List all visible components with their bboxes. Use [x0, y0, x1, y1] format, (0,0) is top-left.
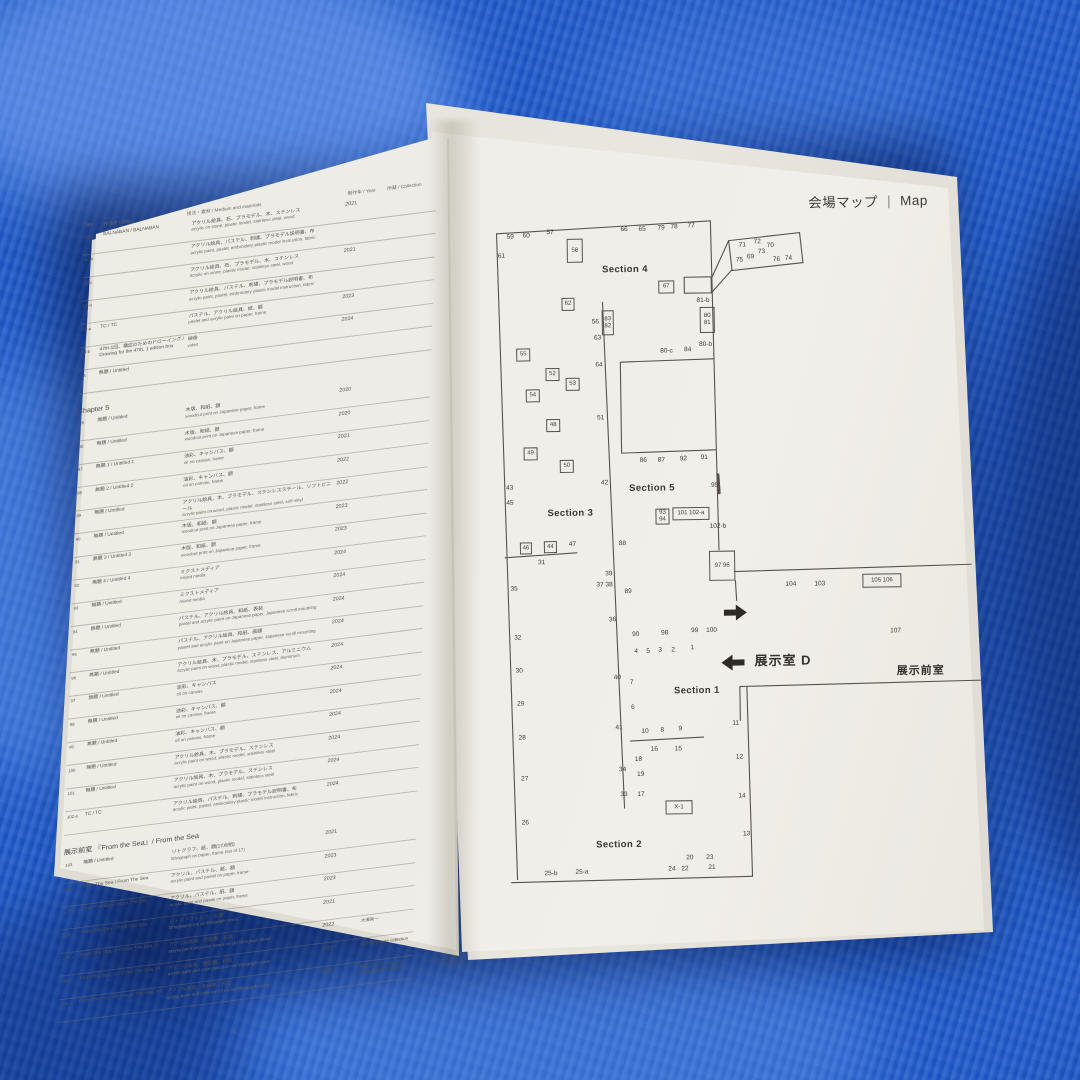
catalog-year: 2023 — [335, 522, 371, 532]
catalog-no: 94 — [71, 627, 88, 634]
map-boxed-number-line: 58 — [571, 247, 578, 254]
catalog-year: 2021 — [323, 895, 359, 905]
map-number: 79 — [657, 226, 664, 233]
map-number: 19 — [637, 772, 644, 779]
catalog-year: 2024 — [332, 615, 368, 625]
map-number: 43 — [506, 486, 513, 493]
map-boxed-number-line: 50 — [563, 463, 570, 470]
map-boxed-number-line: 105 106 — [871, 577, 893, 584]
map-boxed-number: 53 — [566, 378, 580, 391]
map-boxed-number-line: 44 — [547, 544, 554, 551]
map-number: 99 — [691, 628, 698, 635]
catalog-year: 2021 — [325, 826, 361, 836]
catalog-no: 82-d — [81, 302, 98, 309]
map-boxed-number: 67 — [658, 280, 674, 293]
map-number: 15 — [675, 746, 682, 753]
map-number: 45 — [506, 501, 513, 508]
map-boxed-number-line: 49 — [527, 450, 534, 457]
map-number: 29 — [517, 702, 524, 709]
catalog-no: 86 — [77, 442, 94, 449]
map-number: 7 — [630, 680, 634, 687]
map-number: 10 — [641, 729, 648, 736]
map-boxed-number: 46 — [520, 542, 532, 554]
catalog-no: 95 — [70, 650, 87, 657]
map-number: 3 — [658, 648, 662, 655]
map-number: 59 — [507, 235, 514, 242]
map-boxed-number: 58 — [567, 239, 583, 263]
map-number: 51 — [597, 415, 604, 422]
venue-map: Section 4Section 3Section 5Section 1Sect… — [486, 205, 995, 888]
map-boxed-number-line: 55 — [520, 351, 527, 358]
map-number: 35 — [510, 587, 517, 594]
catalog-year: 2023 — [324, 849, 360, 859]
map-labels: 596057616665797877717270736975767481-b80… — [486, 205, 995, 888]
catalog-year: 2024 — [330, 661, 366, 671]
map-boxed-number: X-1 — [665, 800, 692, 814]
map-number: 74 — [785, 256, 792, 263]
map-number: 2 — [671, 647, 675, 654]
map-number: 5 — [646, 649, 650, 656]
map-number: 90 — [632, 632, 639, 639]
map-number: 9 — [678, 726, 682, 733]
catalog-no: 100 — [66, 766, 83, 773]
map-boxed-number-line: 62 — [565, 301, 572, 308]
catalog-rows: 82-aBALNABAN / BALNABANアクリル絵具、石、プラモデル、木、… — [58, 188, 436, 1023]
map-number: 18 — [635, 757, 642, 764]
catalog-collection — [378, 376, 436, 383]
catalog-no: 87 — [76, 465, 93, 472]
map-number: 80-b — [699, 342, 712, 349]
map-boxed-number: 50 — [560, 460, 574, 473]
catalog-no: 102-a — [65, 813, 82, 820]
room-d-label: 展示室 D — [754, 650, 811, 670]
map-number: 56 — [592, 319, 599, 326]
catalog-no: 90 — [74, 535, 91, 542]
left-arrow-icon — [720, 654, 744, 670]
catalog-year: 2024 — [329, 708, 365, 718]
map-boxed-number: 52 — [545, 368, 559, 381]
right-arrow-icon — [724, 604, 748, 620]
map-number: 16 — [651, 747, 658, 754]
map-number: 64 — [595, 362, 602, 369]
catalog-no: 85 — [77, 419, 94, 426]
map-boxed-number: 97 96 — [709, 551, 735, 581]
map-boxed-number: 62 — [561, 298, 574, 311]
map-number: 6 — [631, 705, 635, 712]
catalog-year — [341, 336, 377, 341]
catalog-no: 106-1 — [60, 954, 77, 961]
map-number: 28 — [519, 735, 526, 742]
catalog-no: 101 — [66, 789, 83, 796]
map-boxed-number: 8081 — [700, 307, 715, 333]
map-number: 27 — [521, 776, 528, 783]
map-boxed-number: 55 — [516, 348, 530, 361]
map-boxed-number-line: 54 — [529, 392, 536, 399]
map-number: 34 — [619, 767, 626, 774]
map-number: 32 — [514, 636, 521, 643]
catalog-no: 96 — [69, 674, 86, 681]
catalog-no: 104-a — [63, 884, 80, 891]
map-number: 26 — [522, 820, 529, 827]
map-number: 25-b — [544, 871, 557, 878]
map-number: 98 — [661, 630, 668, 637]
map-number: 4 — [634, 649, 638, 656]
map-number: 76 — [773, 257, 780, 264]
map-number: 40 — [614, 675, 621, 682]
map-boxed-number: 49 — [524, 447, 538, 460]
map-number: 8 — [660, 728, 664, 735]
map-number: 23 — [706, 855, 713, 862]
map-number: 65 — [638, 227, 645, 234]
catalog-no: 91 — [73, 558, 90, 565]
catalog-no: 97 — [69, 697, 86, 704]
map-number: 103 — [814, 581, 825, 588]
catalog-no: 103 — [63, 861, 80, 868]
map-number: 41 — [615, 725, 622, 732]
map-number: 72 — [754, 239, 761, 246]
map-boxed-number: 44 — [544, 541, 557, 553]
map-boxed-number: 48 — [546, 419, 560, 432]
map-number: 11 — [732, 721, 739, 728]
map-number: 42 — [601, 480, 608, 487]
map-boxed-number-line: 97 96 — [715, 562, 730, 569]
catalog-year: 2022 — [336, 476, 372, 486]
catalog-year: 2022 — [337, 453, 373, 463]
map-boxed-number-line: 101 102-a — [677, 510, 704, 517]
map-number: 47 — [569, 542, 576, 549]
map-number: 37 38 — [596, 582, 612, 589]
map-number: 17 — [637, 792, 644, 799]
catalog-year: 2023 — [336, 499, 372, 509]
map-number: 24 — [668, 866, 675, 873]
catalog-year: 2020 — [339, 384, 375, 394]
map-number: 104 — [785, 582, 796, 589]
map-number: 36 — [609, 617, 616, 624]
map-number: 102-b — [710, 524, 727, 531]
map-number: 91 — [701, 455, 708, 462]
map-number: 81-b — [696, 298, 709, 305]
catalog-no: 83-b — [80, 348, 97, 355]
catalog-year: 2022 — [321, 942, 357, 952]
catalog-year: 2024 — [328, 731, 364, 741]
map-number: 1 — [690, 645, 694, 652]
map-number: 100 — [706, 628, 717, 635]
photo-scene: No. 作品名 / Title 技法・素材 / Medium and mater… — [0, 0, 1080, 1080]
map-number: 73 — [758, 249, 765, 256]
map-number: 60 — [523, 233, 530, 240]
map-boxed-number-line: 52 — [549, 371, 556, 378]
catalog-no: 106-3 — [59, 1000, 76, 1007]
catalog-year — [345, 220, 381, 225]
map-number: 66 — [620, 227, 627, 234]
map-boxed-number-line: 94 — [659, 517, 666, 524]
map-boxed-number-line: 82 — [604, 323, 611, 330]
catalog-no: 82-a — [83, 232, 100, 239]
map-number: 84 — [684, 347, 691, 354]
catalog-year: 2024 — [331, 638, 367, 648]
map-number: 107 — [890, 628, 901, 635]
map-boxed-number-line: 81 — [704, 320, 711, 327]
map-number: 33 — [620, 792, 627, 799]
map-number: 75 — [736, 257, 743, 264]
catalog-no: 104-b — [62, 908, 79, 915]
map-number: 12 — [736, 754, 743, 761]
map-boxed-number: 101 102-a — [672, 507, 709, 521]
catalog-collection — [364, 818, 422, 825]
catalog-year: 2022 — [321, 965, 357, 975]
catalog-year: 2024 — [333, 569, 369, 579]
map-number: 89 — [625, 589, 632, 596]
catalog-year: 2021 — [338, 430, 374, 440]
catalog-no: 105 — [61, 931, 78, 938]
map-boxed-number-line: X-1 — [674, 804, 683, 811]
map-number: 39 — [605, 571, 612, 578]
column-header-no: No. — [86, 222, 94, 228]
map-number: 30 — [516, 669, 523, 676]
catalog-year: 2024 — [327, 777, 363, 787]
catalog-no: 92 — [72, 581, 89, 588]
catalog-no: 98 — [68, 720, 85, 727]
catalog-no: 83-a — [80, 325, 97, 332]
catalog-no: 106-2 — [60, 977, 77, 984]
map-number: 57 — [546, 230, 553, 237]
catalog-no: 88 — [75, 488, 92, 495]
map-number: 25-a — [575, 870, 588, 877]
map-number: 86 — [640, 458, 647, 465]
map-page-content: 会場マップ | Map — [486, 189, 1001, 968]
catalog-year: 2024 — [327, 754, 363, 764]
catalog-year: 2022 — [322, 918, 358, 928]
map-number: 22 — [681, 866, 688, 873]
map-number: 63 — [594, 335, 601, 342]
map-number: 71 — [739, 242, 746, 249]
catalog-year: 2021 — [345, 197, 381, 207]
catalog-no: 82-b — [83, 255, 100, 262]
catalog-no: 89 — [74, 512, 91, 519]
map-number: 92 — [680, 456, 687, 463]
anteroom-label: 展示前室 — [897, 662, 945, 679]
catalog-year: 2023 — [324, 872, 360, 882]
catalog-year: 2021 — [344, 243, 380, 253]
catalog-year: 2024 — [333, 592, 369, 602]
map-boxed-number: 105 106 — [862, 573, 901, 588]
catalog-no: 99 — [67, 743, 84, 750]
column-header-title: 作品名 / Title — [103, 218, 130, 228]
catalog-page-content: No. 作品名 / Title 技法・素材 / Medium and mater… — [57, 172, 437, 1058]
catalog-no: 82-c — [82, 279, 99, 286]
map-boxed-number-line: 53 — [569, 381, 576, 388]
catalog-no: 93 — [71, 604, 88, 611]
catalog-year: 2024 — [330, 685, 366, 695]
map-number: 87 — [658, 458, 665, 465]
catalog-year: 2020 — [338, 407, 374, 417]
map-number: 69 — [747, 254, 754, 261]
map-number: 20 — [686, 855, 693, 862]
map-number: 31 — [538, 560, 545, 567]
catalog-year: 2023 — [342, 290, 378, 300]
map-boxed-number: 54 — [526, 389, 540, 402]
map-boxed-number: 9394 — [655, 508, 669, 524]
map-boxed-number: 8382 — [602, 310, 614, 335]
map-number: 78 — [670, 224, 677, 231]
spine-fold-shadow — [428, 120, 480, 965]
map-boxed-number-line: 48 — [550, 422, 557, 429]
map-number: 14 — [738, 793, 745, 800]
catalog-year — [343, 266, 379, 271]
catalog-no: 84 — [79, 371, 96, 378]
catalog-year: 2024 — [334, 546, 370, 556]
map-number: 77 — [687, 223, 694, 230]
map-number: 80-c — [660, 348, 673, 355]
map-number: 88 — [619, 541, 626, 548]
map-number: 70 — [767, 243, 774, 250]
map-number: 13 — [743, 831, 750, 838]
catalog-year: 2024 — [341, 313, 377, 323]
map-number: 21 — [708, 865, 715, 872]
column-header-year: 制作年 / Year — [347, 187, 375, 197]
map-boxed-number-line: 67 — [663, 283, 670, 290]
map-boxed-number-line: 46 — [523, 545, 530, 552]
map-number: 95 — [711, 483, 718, 490]
map-number: 61 — [498, 254, 505, 261]
